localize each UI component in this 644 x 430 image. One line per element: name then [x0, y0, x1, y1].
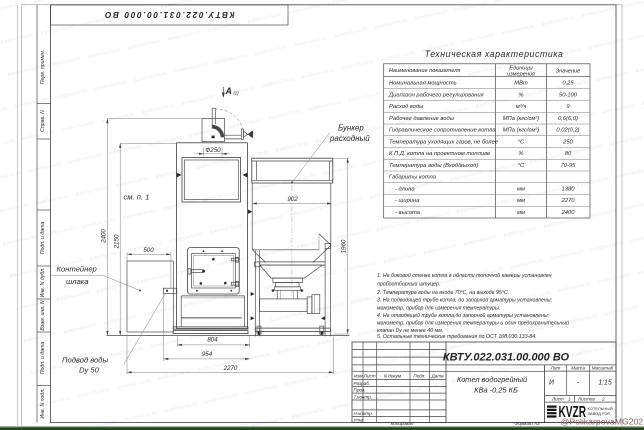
- svg-text:Формат А3: Формат А3: [514, 421, 540, 426]
- svg-text:Dy 50: Dy 50: [79, 366, 100, 375]
- svg-text:3. На подводящей трубе котла,: 3. На подводящей трубе котла, до запорно…: [377, 296, 553, 303]
- svg-text:Разраб.: Разраб.: [354, 381, 371, 386]
- svg-text:Габариты котла: Габариты котла: [389, 175, 437, 181]
- svg-text:Значение: Значение: [556, 69, 581, 75]
- svg-text:1380: 1380: [562, 186, 576, 192]
- svg-text:Подп. и дата: Подп. и дата: [40, 342, 46, 375]
- svg-text:Наименование показателя: Наименование показателя: [389, 68, 460, 74]
- svg-text:Подвод воды: Подвод воды: [62, 356, 108, 365]
- svg-text:КВТУ.022.031.00.000 ВО: КВТУ.022.031.00.000 ВО: [443, 352, 570, 364]
- svg-text:К.П.Д. котла на проектном топл: К.П.Д. котла на проектном топливе: [389, 151, 491, 157]
- svg-text:250: 250: [562, 139, 573, 145]
- svg-text:Масштаб: Масштаб: [592, 366, 614, 371]
- svg-text:Рабочее давление воды: Рабочее давление воды: [389, 116, 455, 122]
- svg-text:%: %: [518, 151, 523, 157]
- svg-text:Котел водогрейный: Котел водогрейный: [457, 375, 527, 384]
- svg-text:4. На отводящей трубе котла,д: 4. На отводящей трубе котла,до запорной …: [377, 312, 550, 319]
- svg-text:Т.контр.: Т.контр.: [354, 395, 373, 400]
- svg-text:2270: 2270: [561, 198, 576, 204]
- svg-text:Копировал: Копировал: [391, 421, 414, 426]
- svg-text:мм: мм: [517, 198, 525, 204]
- svg-text:МПа (кгс/см²): МПа (кгс/см²): [503, 128, 540, 134]
- svg-text:Дата: Дата: [430, 374, 444, 379]
- svg-text:- ширина: - ширина: [395, 198, 420, 204]
- svg-text:0,02(0,2): 0,02(0,2): [556, 128, 579, 134]
- svg-text:2: 2: [601, 397, 605, 402]
- svg-text:Расход воды: Расход воды: [389, 104, 424, 110]
- svg-text:954: 954: [202, 351, 213, 358]
- svg-text:70-95: 70-95: [561, 163, 577, 169]
- svg-text:0,25: 0,25: [562, 81, 574, 87]
- svg-text:Утв.: Утв.: [354, 418, 364, 423]
- svg-text:- высота: - высота: [395, 210, 421, 216]
- svg-text:Перв. примен.: Перв. примен.: [40, 50, 46, 84]
- svg-text:Инв. N дубл.: Инв. N дубл.: [40, 267, 46, 297]
- svg-text:МПа (кгс/см²): МПа (кгс/см²): [503, 116, 540, 122]
- svg-text:Справ. N: Справ. N: [40, 110, 46, 132]
- svg-text:Пров.: Пров.: [354, 388, 366, 393]
- svg-text:1. На боковой стенке котла в: 1. На боковой стенке котла в области топ…: [377, 272, 552, 279]
- svg-text:Инв. N подл.: Инв. N подл.: [40, 388, 46, 418]
- svg-text:Ф250: Ф250: [205, 147, 221, 154]
- svg-text:Техническая характеристика: Техническая характеристика: [425, 49, 564, 59]
- svg-text:Взам. инв. N: Взам. инв. N: [40, 300, 46, 330]
- svg-text:804: 804: [207, 337, 218, 344]
- svg-text:Н.контр.: Н.контр.: [354, 411, 373, 416]
- svg-text:80: 80: [565, 151, 572, 157]
- svg-text:Температура воды (Вход/выход): Температура воды (Вход/выход): [389, 163, 478, 169]
- svg-text:Изм.Лист: Изм.Лист: [354, 374, 376, 379]
- svg-text:Бункер: Бункер: [338, 124, 364, 133]
- svg-text:измерения: измерения: [507, 72, 535, 78]
- svg-text:2150: 2150: [113, 234, 120, 249]
- svg-text:50-100: 50-100: [559, 92, 578, 98]
- svg-text:м³/ч: м³/ч: [516, 104, 527, 110]
- svg-text:Лист: Лист: [551, 397, 564, 402]
- svg-text:Контейнер: Контейнер: [57, 265, 97, 274]
- svg-text:манометр, прибор для измерения: манометр, прибор для измерения температу…: [377, 305, 500, 311]
- svg-text:мм: мм: [517, 210, 525, 216]
- svg-text:пробоотборный штуцер.: пробоотборный штуцер.: [377, 280, 440, 287]
- svg-text:КВТУ.022.031.00.000 ВО: КВТУ.022.031.00.000 ВО: [103, 10, 234, 19]
- svg-text:%: %: [518, 92, 523, 98]
- svg-text:Номинальная мощность: Номинальная мощность: [389, 81, 457, 87]
- svg-text:Подп. и дата: Подп. и дата: [40, 222, 46, 255]
- svg-text:Масса: Масса: [571, 366, 585, 371]
- svg-text:Диапазон рабочего регулировани: Диапазон рабочего регулирования: [388, 92, 484, 98]
- svg-text:Подп.: Подп.: [413, 374, 425, 379]
- svg-text:2400: 2400: [561, 210, 576, 216]
- svg-text:1:15: 1:15: [598, 380, 612, 387]
- svg-text:Листов: Листов: [577, 397, 595, 402]
- svg-text:(2): (2): [234, 91, 240, 96]
- svg-text:клапан Dy не менее 40 мм.: клапан Dy не менее 40 мм.: [377, 328, 443, 334]
- svg-text:Температура уходящих газов, не: Температура уходящих газов, не более: [389, 139, 499, 145]
- svg-text:N докум.: N докум.: [384, 374, 403, 379]
- svg-text:2270: 2270: [223, 365, 238, 372]
- svg-text:5. Остальные технические треб: 5. Остальные технические требования по О…: [377, 334, 537, 340]
- svg-text:1: 1: [568, 397, 571, 402]
- svg-text:@PolikarpovaMG2021: @PolikarpovaMG2021: [561, 416, 644, 426]
- svg-text:2. Температура воды на входе: 2. Температура воды на входе 70°С, на вы…: [376, 290, 509, 296]
- svg-text:мм: мм: [517, 186, 525, 192]
- svg-text:902: 902: [287, 196, 298, 203]
- svg-text:0,6(6,0): 0,6(6,0): [558, 116, 578, 122]
- svg-text:манометр, прибор для измерения: манометр, прибор для измерения температу…: [377, 320, 569, 327]
- svg-text:2400: 2400: [101, 229, 108, 244]
- svg-text:1960: 1960: [341, 239, 348, 253]
- svg-text:°С: °С: [518, 139, 525, 145]
- svg-text:КВа -0,25 КБ: КВа -0,25 КБ: [474, 386, 518, 395]
- svg-text:500: 500: [143, 247, 154, 254]
- svg-text:Гидравлическое сопротивление к: Гидравлическое сопротивление котла: [389, 128, 496, 134]
- svg-text:А: А: [225, 86, 232, 96]
- svg-text:расходный: расходный: [329, 134, 370, 143]
- svg-text:°С: °С: [518, 163, 525, 169]
- svg-text:- длина: - длина: [395, 186, 415, 192]
- svg-text:Лит: Лит: [550, 366, 561, 371]
- svg-text:шлака: шлака: [66, 277, 89, 286]
- svg-text:МВт: МВт: [514, 81, 528, 87]
- svg-text:см. п. 1: см. п. 1: [124, 193, 150, 202]
